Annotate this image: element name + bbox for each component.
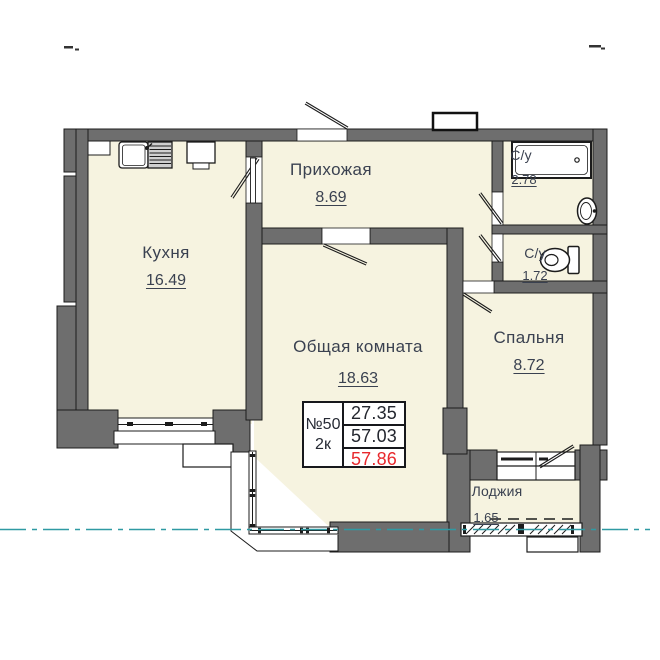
bedroom-area: 8.72: [513, 357, 544, 375]
apartment-info-table: №50 2к 27.35 57.03 57.86: [302, 401, 406, 468]
loggia-label: Лоджия: [472, 483, 523, 499]
hallway-label: Прихожая: [290, 160, 372, 180]
area-row-living: 27.35: [344, 403, 404, 426]
bathroom-area: 2.78: [511, 172, 536, 187]
living-area: 18.63: [338, 370, 378, 388]
living-label: Общая комната: [293, 337, 423, 357]
area-row-total: 57.03: [344, 426, 404, 449]
apartment-id-cell: №50 2к: [304, 403, 344, 466]
wc-label: С/у: [524, 245, 546, 261]
kitchen-area: 16.49: [146, 272, 186, 290]
labels: Кухня 16.49 Прихожая 8.69 Общая комната …: [0, 0, 660, 660]
area-row-total-with-loggia: 57.86: [344, 449, 404, 470]
bathroom-label: С/у: [510, 147, 532, 163]
apartment-number: №50: [306, 415, 341, 435]
loggia-area: 1.65: [473, 510, 498, 525]
floor-plan: Кухня 16.49 Прихожая 8.69 Общая комната …: [0, 0, 660, 660]
hallway-area: 8.69: [315, 189, 346, 207]
apartment-type: 2к: [315, 435, 331, 455]
apartment-areas-cell: 27.35 57.03 57.86: [344, 403, 404, 466]
bedroom-label: Спальня: [493, 328, 564, 348]
wc-area: 1.72: [522, 268, 547, 283]
kitchen-label: Кухня: [142, 243, 190, 263]
